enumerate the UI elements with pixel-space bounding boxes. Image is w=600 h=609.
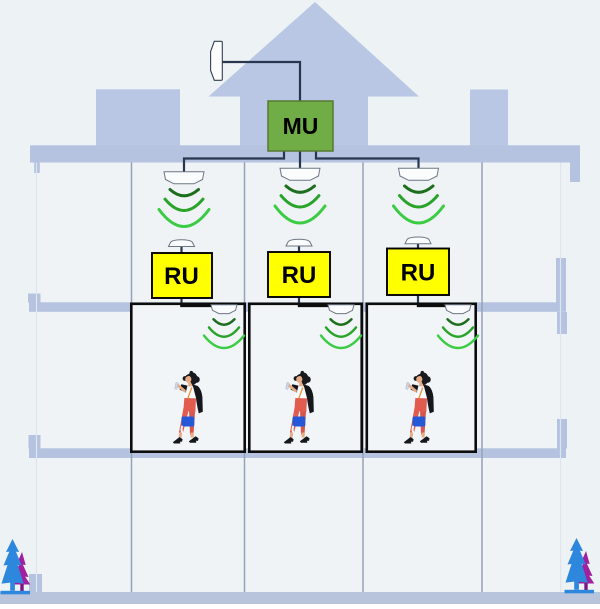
svg-text:RU: RU [164, 263, 199, 290]
svg-text:MU: MU [283, 113, 319, 139]
svg-text:RU: RU [401, 260, 436, 287]
svg-text:RU: RU [282, 262, 317, 289]
